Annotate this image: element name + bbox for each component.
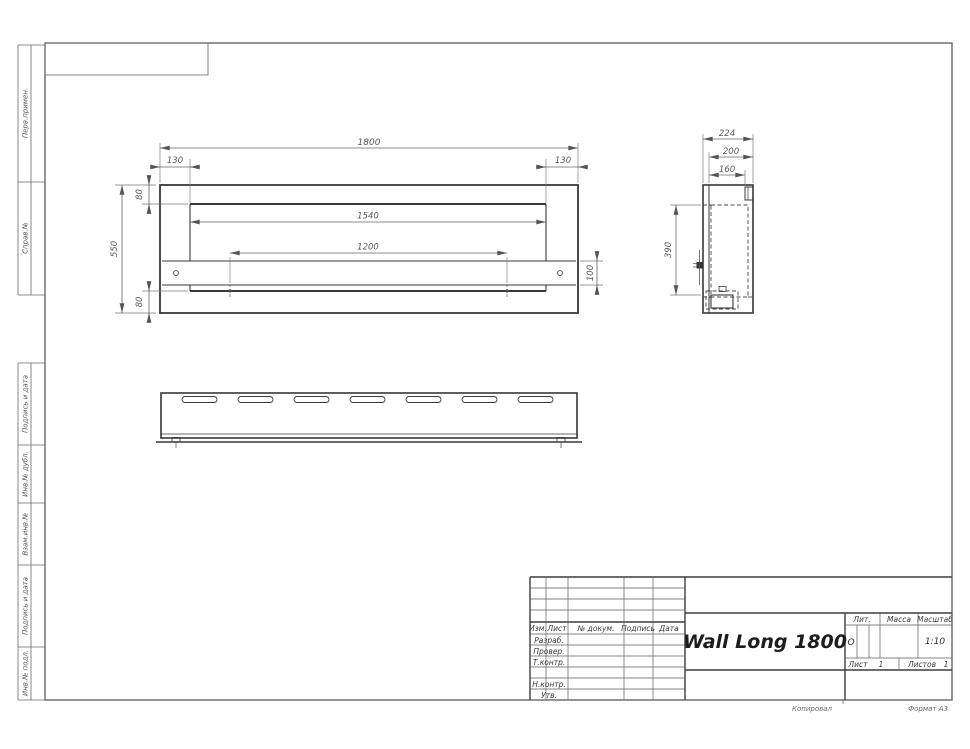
front-view-dimensions: 1800 130 130 1540 1200 550 80 80 100: [110, 138, 603, 323]
dim-body-depth: 200: [723, 147, 739, 157]
bottom-view-outline: [161, 393, 577, 438]
engineering-drawing: Перв.примен. Справ.№ Подпись и дата Инв.…: [0, 0, 970, 749]
dim-bracket-height: 100: [586, 265, 596, 281]
dim-right-offset: 130: [555, 156, 571, 166]
massa-label: Масса: [887, 615, 911, 624]
sheet-frame: [45, 43, 952, 704]
dim-inner-depth: 160: [719, 165, 735, 175]
list-value: 1: [879, 660, 884, 669]
mount-hole-right: [558, 271, 563, 276]
dim-opening-height: 390: [664, 242, 674, 258]
col-sign: Подпись: [621, 624, 655, 633]
dim-left-offset: 130: [167, 156, 183, 166]
row-nkontr: Н.контр.: [532, 680, 566, 689]
sidebar-label-podpis-data-2: Подпись и дата: [22, 577, 30, 635]
lit-value: О: [847, 638, 854, 648]
dim-total-depth: 224: [719, 129, 735, 139]
row-tkontr: Т.контр.: [533, 658, 566, 667]
sidebar-label-podpis-data-1: Подпись и дата: [22, 375, 30, 433]
drawing-sheet: Перв.примен. Справ.№ Подпись и дата Инв.…: [0, 0, 970, 749]
side-view: [693, 185, 753, 313]
sidebar-label-inv-dubl: Инв.№ дубл.: [22, 451, 30, 497]
dim-total-width: 1800: [358, 138, 381, 148]
sidebar-label-perv-primen: Перв.примен.: [22, 88, 30, 138]
dim-bottom-border: 80: [135, 297, 145, 308]
listov-value: 1: [944, 660, 949, 669]
dim-opening-width: 1540: [357, 212, 379, 222]
row-razrab: Разраб.: [534, 636, 563, 645]
row-utv: Утв.: [541, 691, 557, 700]
sidebar-label-sprav-no: Справ.№: [22, 222, 30, 254]
col-izm: Изм.: [529, 624, 547, 633]
footer-labels: Копировал Формат А3: [792, 705, 948, 713]
col-list: Лист: [546, 624, 567, 633]
format-label: Формат А3: [908, 705, 948, 713]
masshtab-value: 1:10: [925, 637, 945, 647]
dim-top-border: 80: [135, 189, 145, 200]
copied-label: Копировал: [792, 705, 833, 713]
listov-label: Листов: [907, 660, 936, 669]
mount-hole-left: [174, 271, 179, 276]
title-block: Изм. Лист № докум. Подпись Дата Разраб. …: [529, 577, 953, 700]
sidebar-label-inv-podl: Инв.№ подл.: [22, 650, 30, 696]
vent-slots: [182, 397, 553, 403]
top-left-reference-box: [45, 43, 208, 75]
lit-label: Лит.: [852, 615, 870, 624]
row-prover: Провер.: [533, 647, 564, 656]
col-doc: № докум.: [577, 624, 615, 633]
drawing-title: Wall Long 1800: [683, 631, 847, 653]
sidebar-label-vzam-inv: Взам.инв.№: [22, 512, 30, 555]
sidebar-labels: Перв.примен. Справ.№ Подпись и дата Инв.…: [22, 88, 30, 696]
rear-bracket: [745, 187, 753, 200]
list-label: Лист: [847, 660, 868, 669]
hidden-firebox: [711, 205, 748, 297]
bottom-view: [156, 393, 582, 448]
dim-mount-span: 1200: [357, 243, 379, 253]
masshtab-label: Масштаб: [917, 615, 953, 624]
side-view-outline: [703, 185, 753, 313]
dim-total-height: 550: [110, 241, 120, 257]
col-date: Дата: [658, 624, 679, 633]
